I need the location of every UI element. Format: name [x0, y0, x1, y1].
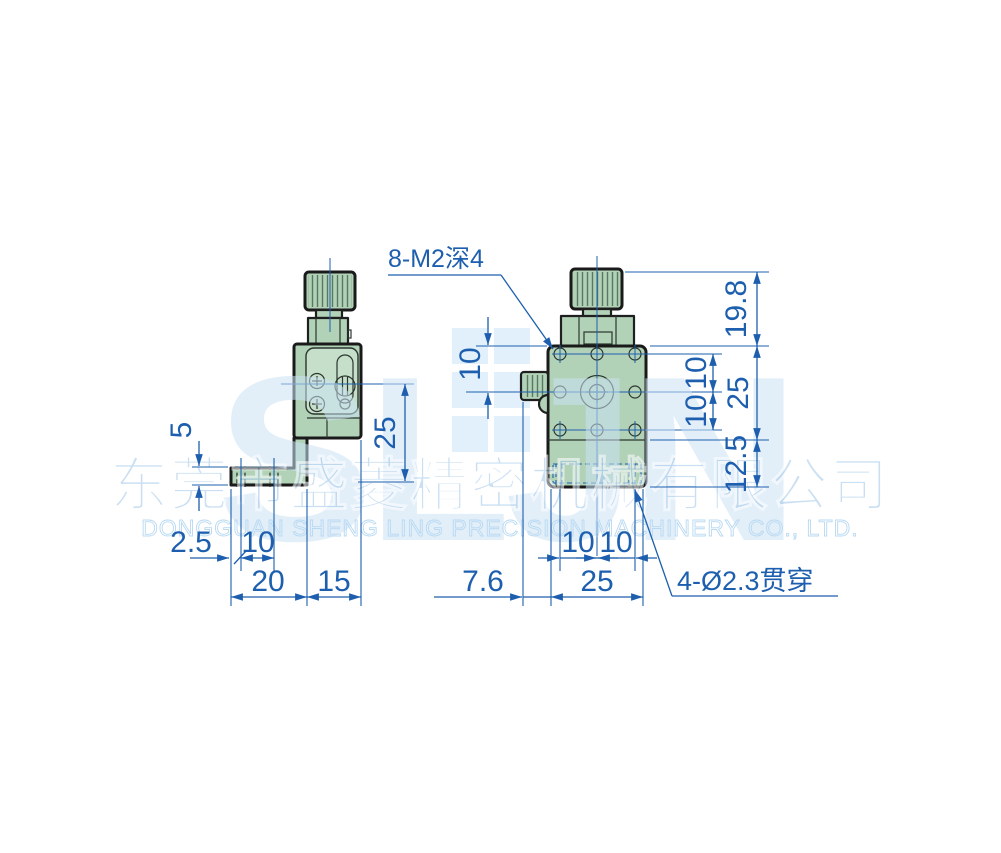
dim-body-width: 25: [580, 565, 613, 598]
dim-pitch-upper: 10: [680, 356, 713, 389]
dim-knob-protrusion: 7.6: [462, 565, 504, 598]
drawing-canvas: SLJN 东莞市盛菱精密机械有限公司 DONGGUAN SHENG LING P…: [0, 0, 1001, 853]
dim-edge-to-hole: 2.5: [170, 526, 212, 559]
watermark-text-layer: SLJN 东莞市盛菱精密机械有限公司 DONGGUAN SHENG LING P…: [110, 327, 890, 590]
dim-foot-length: 20: [251, 565, 284, 598]
dim-stage-height: 25: [722, 376, 755, 409]
dim-foot-thickness: 5: [165, 422, 198, 439]
through-hole-callout: 4-Ø2.3贯穿: [677, 566, 814, 596]
thread-callout: 8-M2深4: [388, 245, 484, 273]
dim-body-depth: 15: [317, 565, 350, 598]
dim-top-to-axis: 10: [454, 347, 487, 380]
dim-center-height: 25: [369, 416, 402, 449]
dim-base-height: 12.5: [720, 435, 753, 493]
dim-knob-height: 19.8: [720, 280, 753, 338]
dim-hole-pitch: 10: [241, 526, 274, 559]
dim-pitch-right: 10: [599, 526, 632, 559]
dim-pitch-left: 10: [561, 526, 594, 559]
technical-drawing: SLJN 东莞市盛菱精密机械有限公司 DONGGUAN SHENG LING P…: [0, 0, 1001, 853]
dim-pitch-lower: 10: [680, 394, 713, 427]
left-knob-neck: [316, 310, 342, 318]
